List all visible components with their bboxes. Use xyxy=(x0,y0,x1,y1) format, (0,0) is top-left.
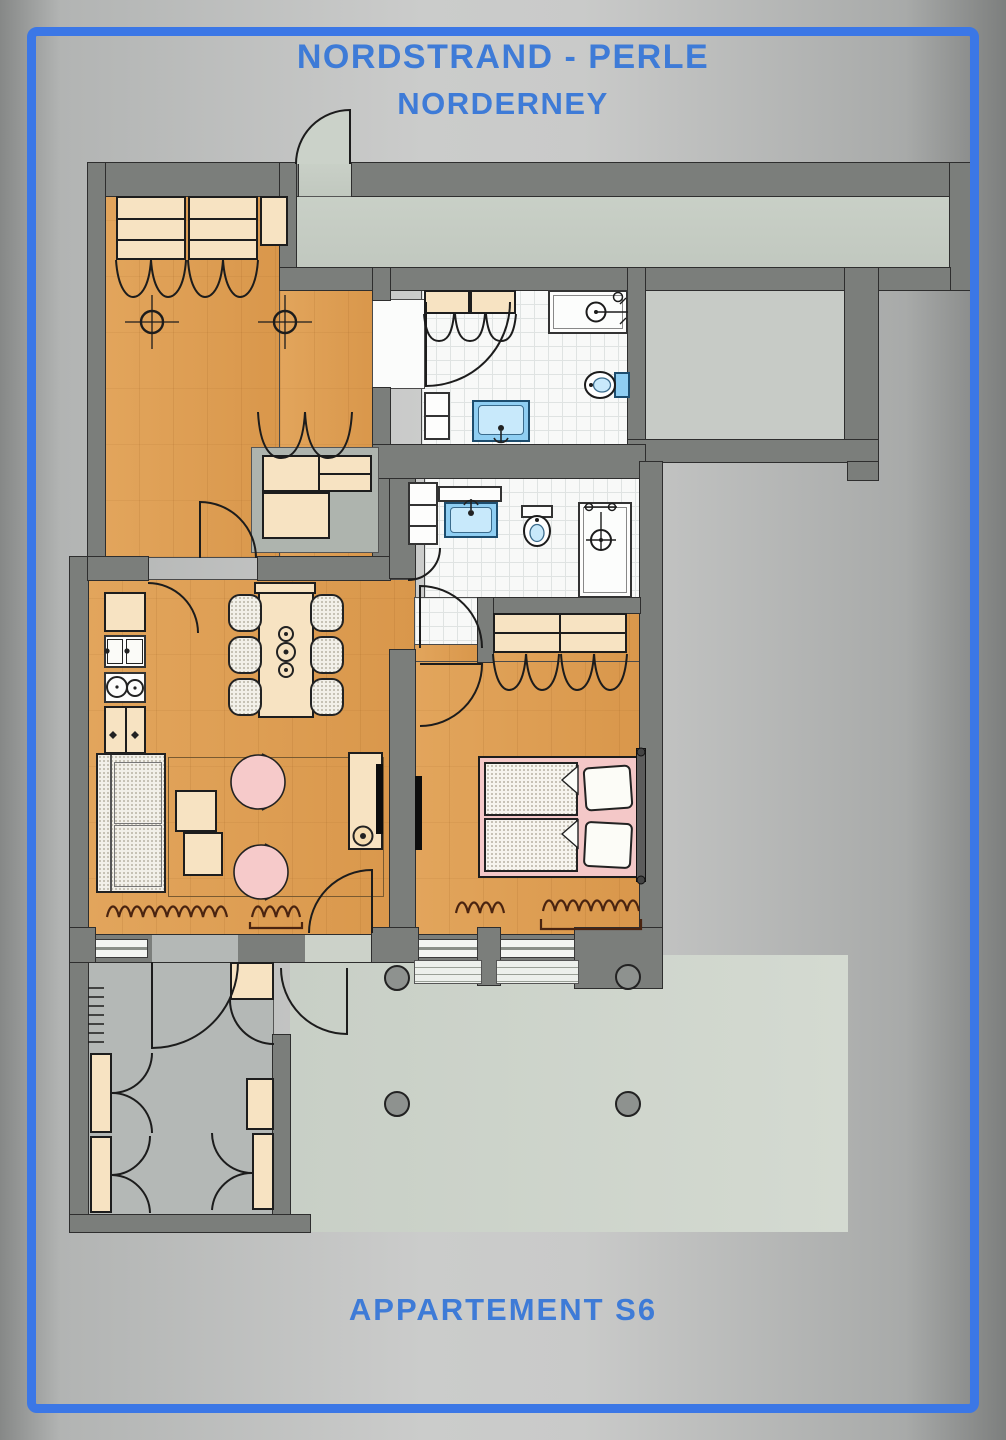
floor-plan-page: { "header": { "line1": "NORDSTRAND - PER… xyxy=(0,0,1006,1440)
blue-border-frame xyxy=(27,27,979,1413)
